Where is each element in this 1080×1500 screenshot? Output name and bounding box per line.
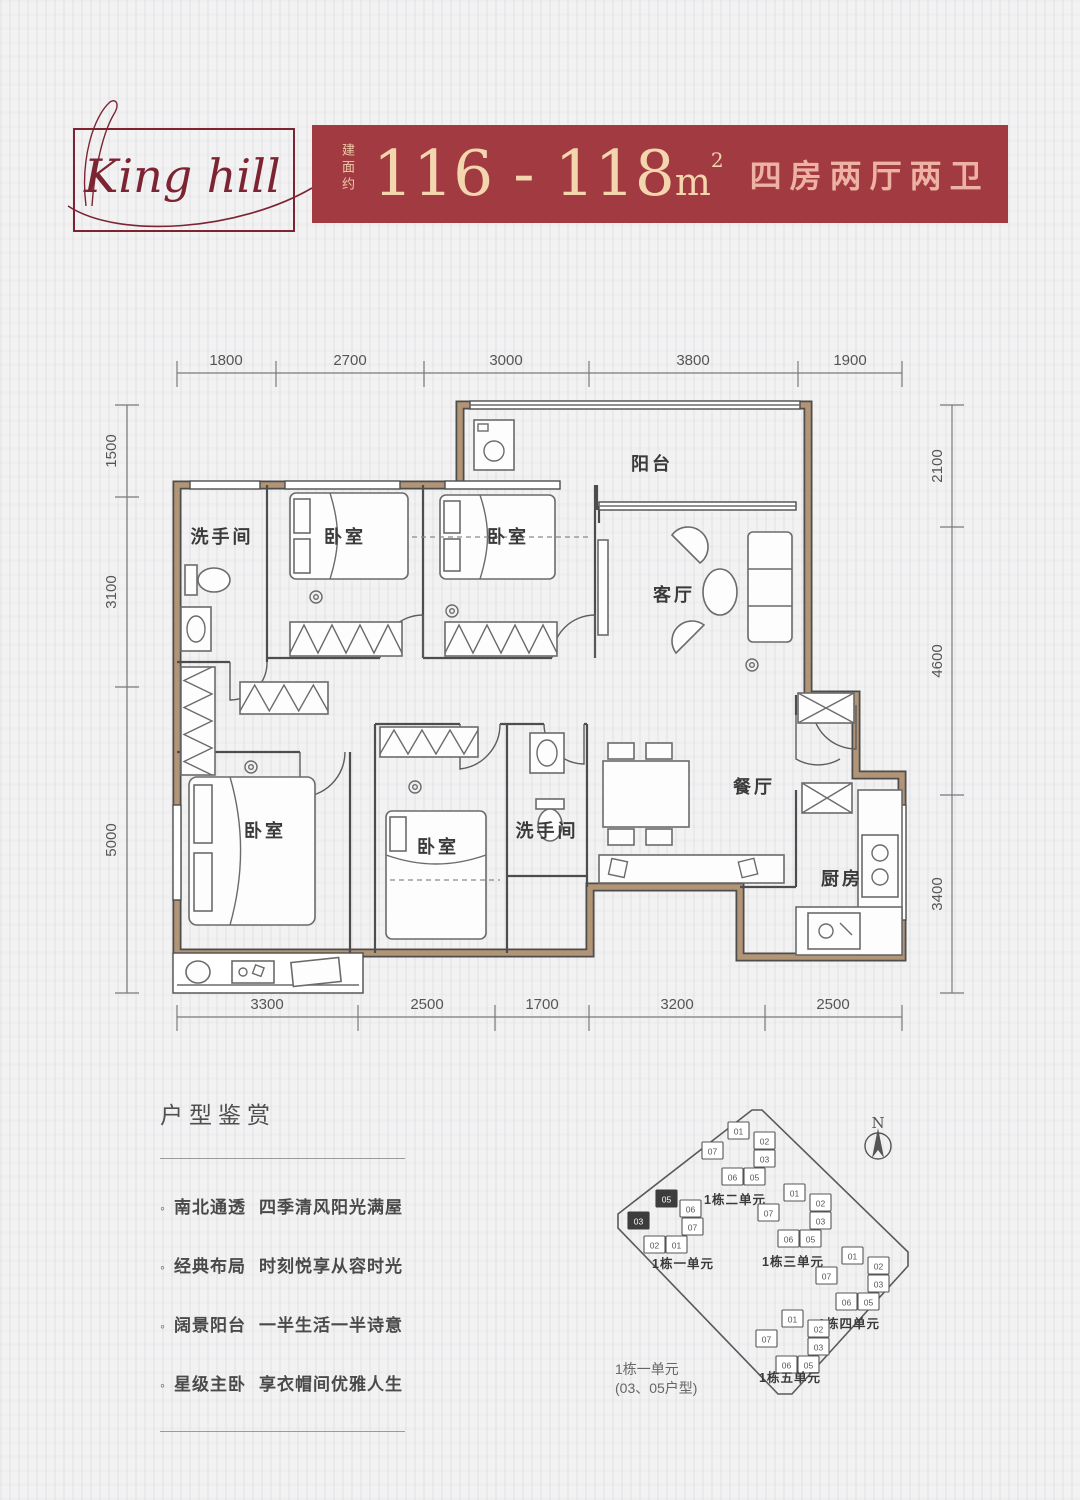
svg-text:3300: 3300 [250, 996, 283, 1013]
feature-item: ◦ 南北通透 四季清风阳光满屋 [160, 1193, 440, 1218]
unit-id: 07 [822, 1272, 832, 1282]
svg-text:1700: 1700 [525, 996, 558, 1013]
header-banner: 建面约 116 - 118m2 四房两厅两卫 [312, 125, 1008, 223]
unit-id: 06 [728, 1173, 738, 1183]
armchair-icon [672, 527, 708, 563]
floorplan: 1800 2700 3000 3800 1900 3300 2500 1700 … [90, 335, 1000, 1065]
site-cluster: 0506070302011栋一单元 [628, 1190, 714, 1271]
features-title: 户型鉴赏 [160, 1096, 440, 1130]
unit-id: 05 [806, 1235, 816, 1245]
svg-text:3000: 3000 [489, 352, 522, 369]
layout-description: 四房两厅两卫 [750, 151, 990, 197]
unit-id: 02 [650, 1241, 660, 1251]
svg-text:2500: 2500 [410, 996, 443, 1013]
svg-text:1500: 1500 [103, 434, 120, 467]
feature-item: ◦ 经典布局 时刻悦享从容时光 [160, 1252, 440, 1277]
area-range: 116 - 118m2 [373, 146, 724, 203]
flyer-page: King hill 建面约 116 - 118m2 四房两厅两卫 1800 27… [0, 0, 1080, 1500]
room-label-bed4: 卧室 [417, 836, 459, 857]
compass-icon: N [865, 1114, 891, 1159]
room-label-kitchen: 厨房 [821, 868, 863, 889]
unit-id: 01 [848, 1252, 858, 1262]
site-caption-line2: (03、05户型) [615, 1380, 697, 1396]
site-cluster: 0102030706051栋二单元 [702, 1122, 775, 1207]
room-label-bed2: 卧室 [324, 526, 366, 547]
hall-bench-icon [599, 855, 784, 883]
unit-id: 02 [760, 1137, 770, 1147]
site-cluster: 0102030706051栋五单元 [756, 1310, 829, 1385]
svg-text:5000: 5000 [103, 823, 120, 856]
site-caption-line1: 1栋一单元 [615, 1361, 679, 1377]
site-clusters: 0506070302011栋一单元0102030706051栋二单元010203… [628, 1122, 889, 1385]
sofa-icon [748, 532, 792, 642]
unit-id: 06 [784, 1235, 794, 1245]
unit-id: 03 [634, 1217, 644, 1227]
unit-id: 01 [734, 1127, 744, 1137]
bullet-icon: ◦ [160, 1318, 166, 1334]
room-label-living: 客厅 [653, 584, 695, 605]
unit-id: 06 [782, 1361, 792, 1371]
unit-id: 01 [790, 1189, 800, 1199]
svg-text:2500: 2500 [816, 996, 849, 1013]
tv-cabinet-icon [598, 540, 608, 635]
elevator-icon [798, 693, 854, 813]
room-label-balcony: 阳台 [631, 453, 673, 474]
bullet-icon: ◦ [160, 1259, 166, 1275]
features-block: 户型鉴赏 ◦ 南北通透 四季清风阳光满屋 ◦ 经典布局 时刻悦享从容时光 ◦ 阔… [160, 1096, 440, 1432]
unit-id: 07 [688, 1223, 698, 1233]
site-cluster: 0102030706051栋四单元 [816, 1247, 889, 1331]
plan-body: 洗手间 卧室 卧室 阳台 客厅 卧室 卧室 洗手间 餐厅 厨房 [173, 401, 906, 993]
room-label-dining: 餐厅 [732, 776, 775, 797]
svg-text:3100: 3100 [103, 575, 120, 608]
unit-id: 01 [788, 1315, 798, 1325]
coffee-table-icon [703, 569, 737, 615]
bed-icons [189, 493, 555, 939]
kitchen-sink-icon [808, 913, 860, 949]
unit-id: 03 [816, 1217, 826, 1227]
divider [160, 1158, 405, 1159]
unit-id: 07 [708, 1147, 718, 1157]
feature-item: ◦ 星级主卧 享衣帽间优雅人生 [160, 1370, 440, 1395]
area-unit: m2 [675, 160, 724, 204]
washer-icon [474, 420, 514, 470]
svg-text:3200: 3200 [660, 996, 693, 1013]
unit-id: 05 [804, 1361, 814, 1371]
cluster-label: 1栋五单元 [759, 1370, 821, 1385]
room-label-master: 卧室 [244, 820, 286, 841]
unit-id: 05 [662, 1195, 672, 1205]
svg-text:4600: 4600 [929, 644, 946, 677]
unit-id: 03 [814, 1343, 824, 1353]
unit-id: 05 [750, 1173, 760, 1183]
svg-text:2100: 2100 [929, 449, 946, 482]
bullet-icon: ◦ [160, 1200, 166, 1216]
bullet-icon: ◦ [160, 1377, 166, 1393]
unit-id: 02 [814, 1325, 824, 1335]
feature-item: ◦ 阔景阳台 一半生活一半诗意 [160, 1311, 440, 1336]
cluster-label: 1栋一单元 [652, 1256, 714, 1271]
brand-logo: King hill [50, 88, 340, 238]
site-cluster: 0102030706051栋三单元 [758, 1184, 831, 1269]
logo-text: King hill [83, 149, 281, 203]
dim-top: 1800 2700 3000 3800 1900 [177, 352, 902, 387]
toilet-icon [185, 565, 230, 595]
dim-left: 1500 3100 5000 [103, 405, 139, 993]
unit-id: 03 [760, 1155, 770, 1165]
dim-bottom: 3300 2500 1700 3200 2500 [177, 996, 902, 1031]
cluster-label: 1栋二单元 [704, 1192, 766, 1207]
svg-text:1900: 1900 [833, 352, 866, 369]
unit-id: 05 [864, 1298, 874, 1308]
unit-id: 06 [842, 1298, 852, 1308]
stove-icon [862, 835, 898, 897]
dining-table-icon [603, 743, 689, 845]
unit-id: 01 [672, 1241, 682, 1251]
dim-right: 2100 4600 3400 [929, 405, 964, 993]
room-label-bath2: 洗手间 [516, 820, 579, 841]
unit-id: 07 [762, 1335, 772, 1345]
room-label-bath1: 洗手间 [191, 526, 254, 547]
unit-id: 07 [764, 1209, 774, 1219]
unit-id: 06 [686, 1205, 696, 1215]
svg-text:2700: 2700 [333, 352, 366, 369]
unit-id: 02 [874, 1262, 884, 1272]
divider [160, 1431, 405, 1432]
svg-text:3400: 3400 [929, 877, 946, 910]
svg-text:3800: 3800 [676, 352, 709, 369]
area-prefix: 建面约 [338, 143, 357, 205]
cluster-label: 1栋三单元 [762, 1254, 824, 1269]
bath-sink-icon-2 [530, 733, 564, 773]
site-plan: 0506070302011栋一单元0102030706051栋二单元010203… [600, 1080, 1030, 1440]
bath-sink-icon [181, 607, 211, 651]
unit-id: 02 [816, 1199, 826, 1209]
svg-text:1800: 1800 [209, 352, 242, 369]
armchair-icon [672, 621, 704, 653]
unit-id: 03 [874, 1280, 884, 1290]
room-label-bed3: 卧室 [487, 526, 529, 547]
